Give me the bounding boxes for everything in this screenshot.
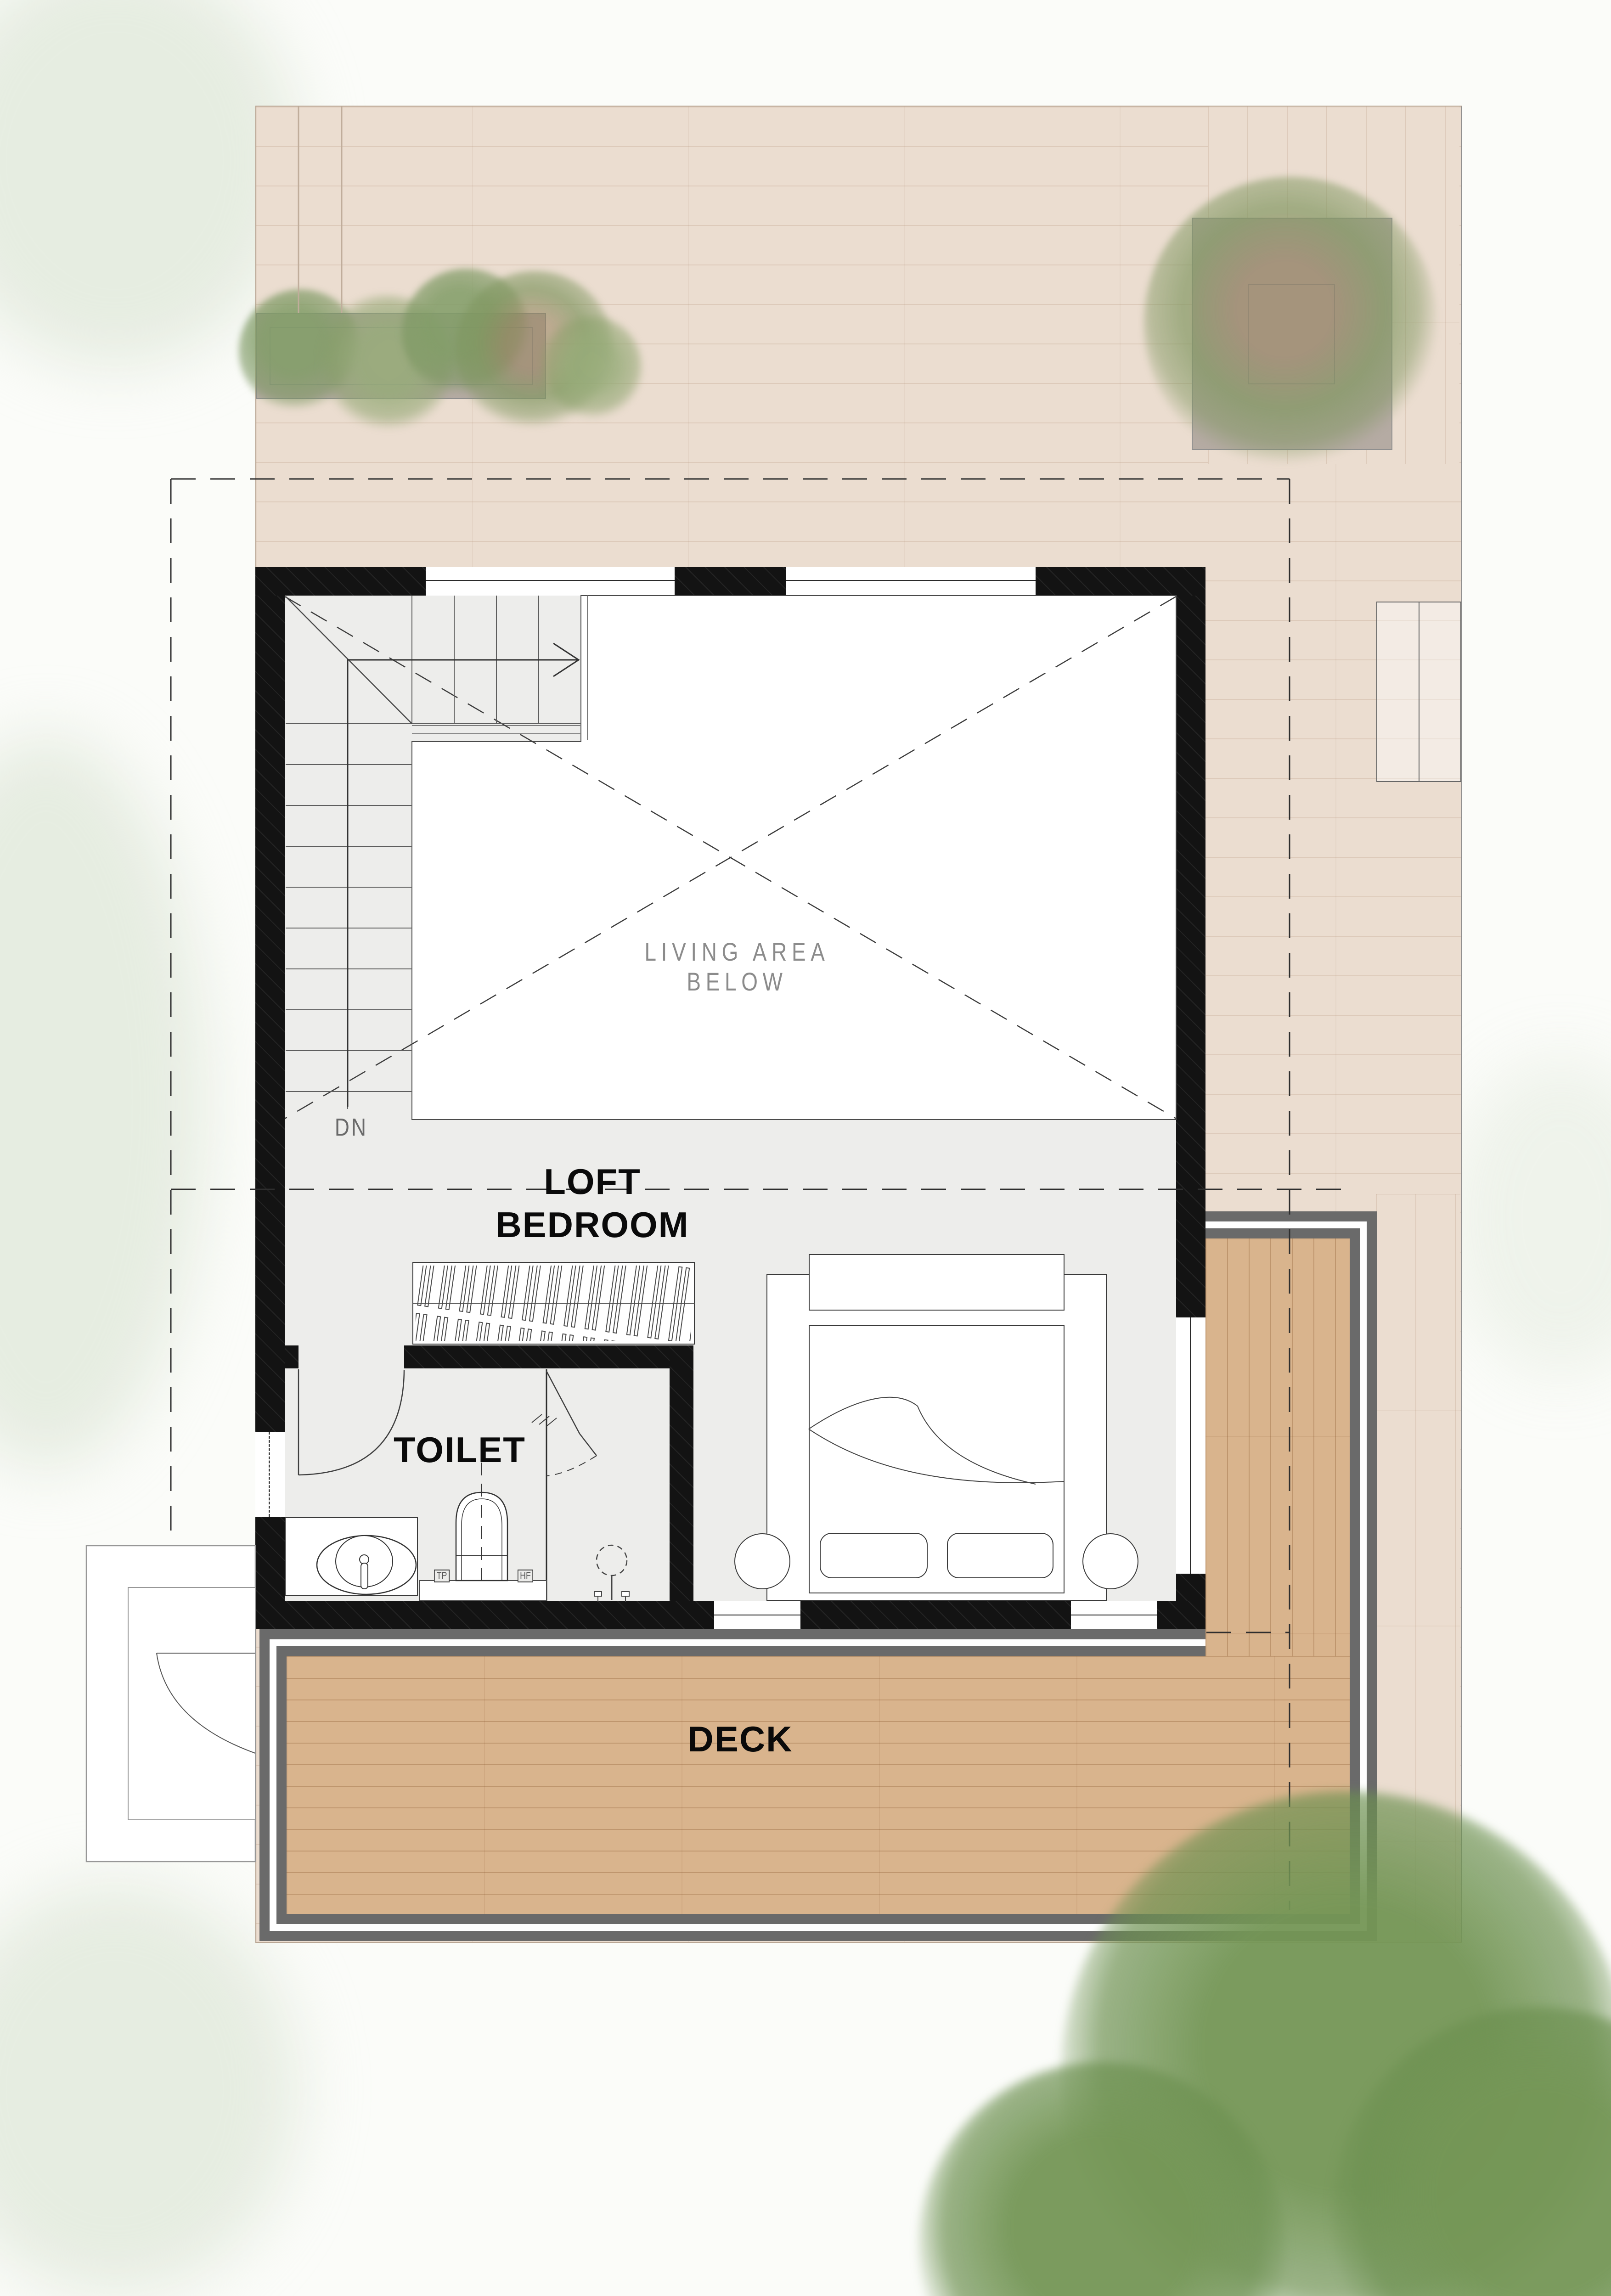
living-area-below-label: LIVING AREA BELOW xyxy=(624,937,850,996)
loft-edge-trim-lines xyxy=(412,596,587,740)
hand-faucet-tag: HF xyxy=(518,1570,533,1582)
wc-ledge xyxy=(419,1581,546,1601)
toilet-paper-tag: TP xyxy=(434,1570,450,1582)
toilet-label: TOILET xyxy=(368,1429,552,1471)
stair-dn-label: DN xyxy=(329,1113,374,1142)
shower-head xyxy=(594,1545,629,1602)
floor-plan-canvas: LIVING AREA BELOW LOFT BEDROOM TOILET DE… xyxy=(0,0,1611,2279)
lower-level-outline xyxy=(86,1546,255,1862)
living-area-void xyxy=(412,596,1176,1120)
wc-toilet xyxy=(456,1463,507,1581)
terrace-joint-lines xyxy=(299,107,342,313)
bed-blanket-fold xyxy=(809,1397,1065,1484)
loft-bedroom-label: LOFT BEDROOM xyxy=(478,1160,707,1246)
loft-bedroom-label-line1: LOFT xyxy=(478,1160,707,1203)
loft-bedroom-label-line2: BEDROOM xyxy=(478,1203,707,1246)
sink xyxy=(317,1536,416,1594)
deck-label: DECK xyxy=(648,1718,832,1760)
